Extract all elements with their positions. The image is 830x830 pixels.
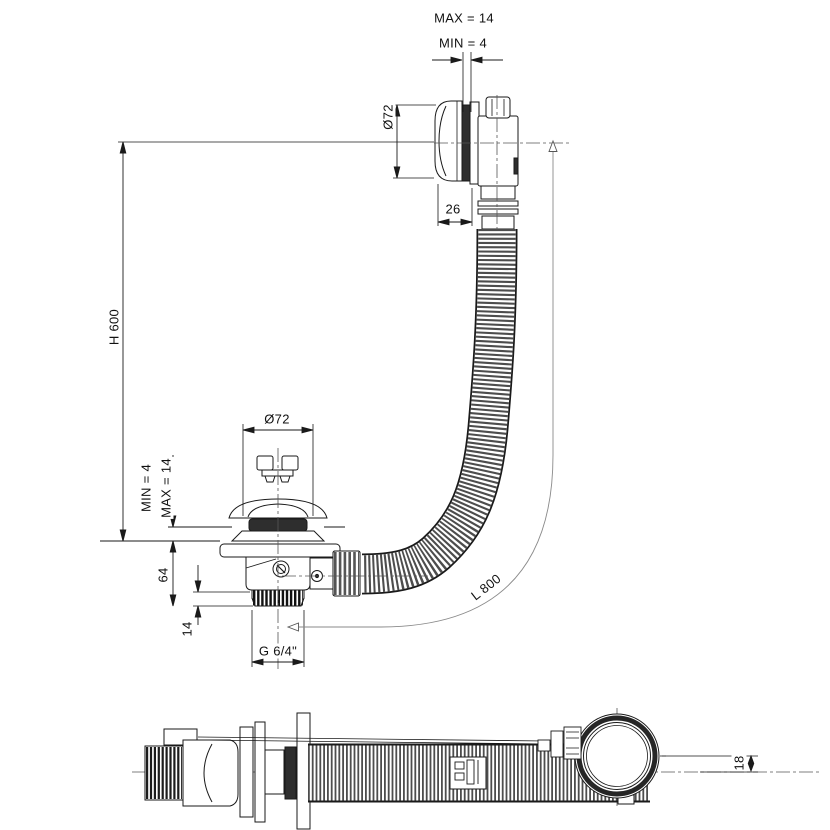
dim-label-floor-min: MIN = 4 xyxy=(139,463,154,513)
dim-label-thread-length: 14 xyxy=(180,620,195,637)
dim-label-overflow-min: MIN = 4 xyxy=(438,36,488,51)
bottom-view xyxy=(145,713,758,829)
overflow-knob xyxy=(486,97,510,118)
overflow-head-bottom xyxy=(575,714,659,798)
dim-label-head-offset: 18 xyxy=(732,754,747,771)
dim-label-body-height: 64 xyxy=(156,566,171,583)
flexible-hose-front xyxy=(362,229,497,574)
dim-label-install-height: H 600 xyxy=(107,308,122,346)
dim-label-thread-size: G 6/4" xyxy=(258,644,298,659)
dim-label-cap-depth: 26 xyxy=(444,202,461,217)
dim-label-drain-cap-diameter: Ø72 xyxy=(263,412,290,427)
drawing-svg xyxy=(0,0,830,830)
technical-drawing-canvas: MAX = 14 MIN = 4 Ø72 26 H 600 Ø72 MIN = … xyxy=(0,0,830,830)
dim-label-floor-max: MAX = 14 xyxy=(159,457,174,519)
plug-wing-cap xyxy=(257,456,298,482)
waste-flange xyxy=(220,544,340,557)
dim-label-overflow-max: MAX = 14 xyxy=(433,11,495,26)
bottom-gasket xyxy=(285,747,296,799)
dim-label-overflow-cap-diameter: Ø72 xyxy=(381,103,396,130)
